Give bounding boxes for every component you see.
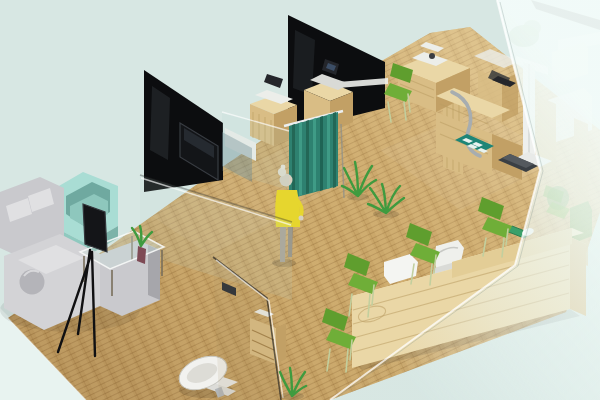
wall-left-reflection xyxy=(150,86,170,160)
sofa-ball-cushion xyxy=(20,270,45,295)
wall-reflection xyxy=(293,30,315,95)
person-hand xyxy=(299,216,304,221)
privacy-curtain xyxy=(284,111,344,199)
tripod-screen xyxy=(83,204,107,252)
render-canvas xyxy=(0,0,600,400)
table-vase xyxy=(137,246,146,264)
clinic-isometric-render xyxy=(0,0,600,400)
instrument-lens xyxy=(429,53,435,59)
